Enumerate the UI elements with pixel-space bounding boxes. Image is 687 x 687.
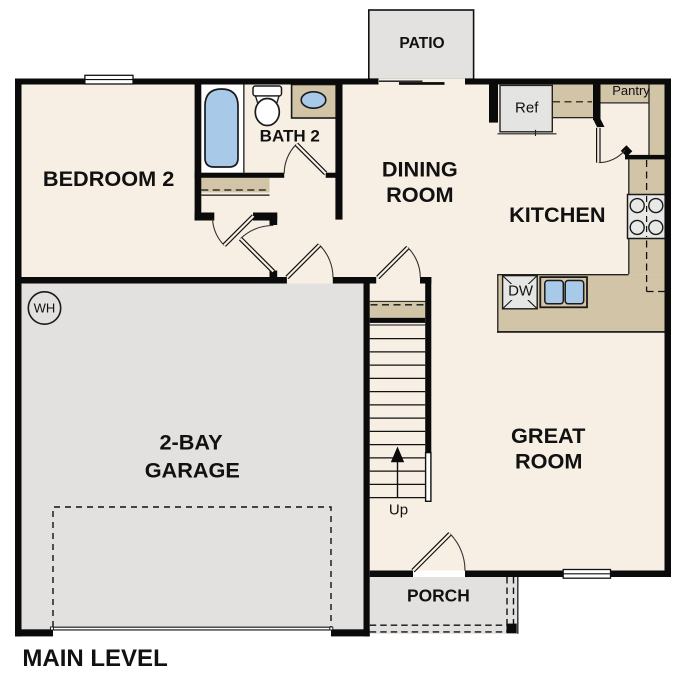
svg-text:2-BAY: 2-BAY [159, 429, 223, 454]
svg-text:GARAGE: GARAGE [145, 457, 240, 482]
svg-text:WH: WH [34, 301, 56, 316]
svg-text:GREAT: GREAT [511, 423, 586, 448]
svg-text:PATIO: PATIO [399, 35, 444, 52]
svg-text:Pantry: Pantry [612, 83, 650, 98]
svg-text:Up: Up [389, 502, 408, 519]
svg-text:DINING: DINING [382, 157, 458, 182]
svg-text:PORCH: PORCH [407, 586, 470, 606]
svg-text:BATH 2: BATH 2 [260, 126, 320, 145]
svg-text:ROOM: ROOM [386, 182, 453, 207]
svg-text:DW: DW [508, 283, 534, 300]
svg-text:BEDROOM 2: BEDROOM 2 [43, 166, 174, 191]
svg-text:ROOM: ROOM [515, 449, 582, 474]
svg-text:KITCHEN: KITCHEN [509, 202, 605, 227]
svg-text:MAIN LEVEL: MAIN LEVEL [22, 645, 167, 672]
svg-text:Ref: Ref [515, 100, 539, 117]
